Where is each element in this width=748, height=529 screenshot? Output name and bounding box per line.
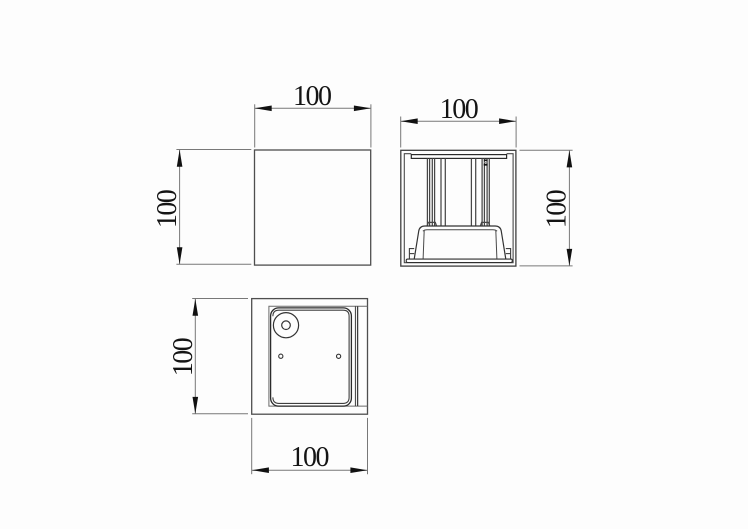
svg-text:100: 100 [440, 94, 479, 125]
svg-text:100: 100 [291, 442, 330, 473]
svg-text:100: 100 [542, 189, 573, 228]
svg-text:100: 100 [152, 189, 183, 228]
svg-text:100: 100 [293, 81, 332, 112]
svg-text:100: 100 [168, 337, 199, 376]
